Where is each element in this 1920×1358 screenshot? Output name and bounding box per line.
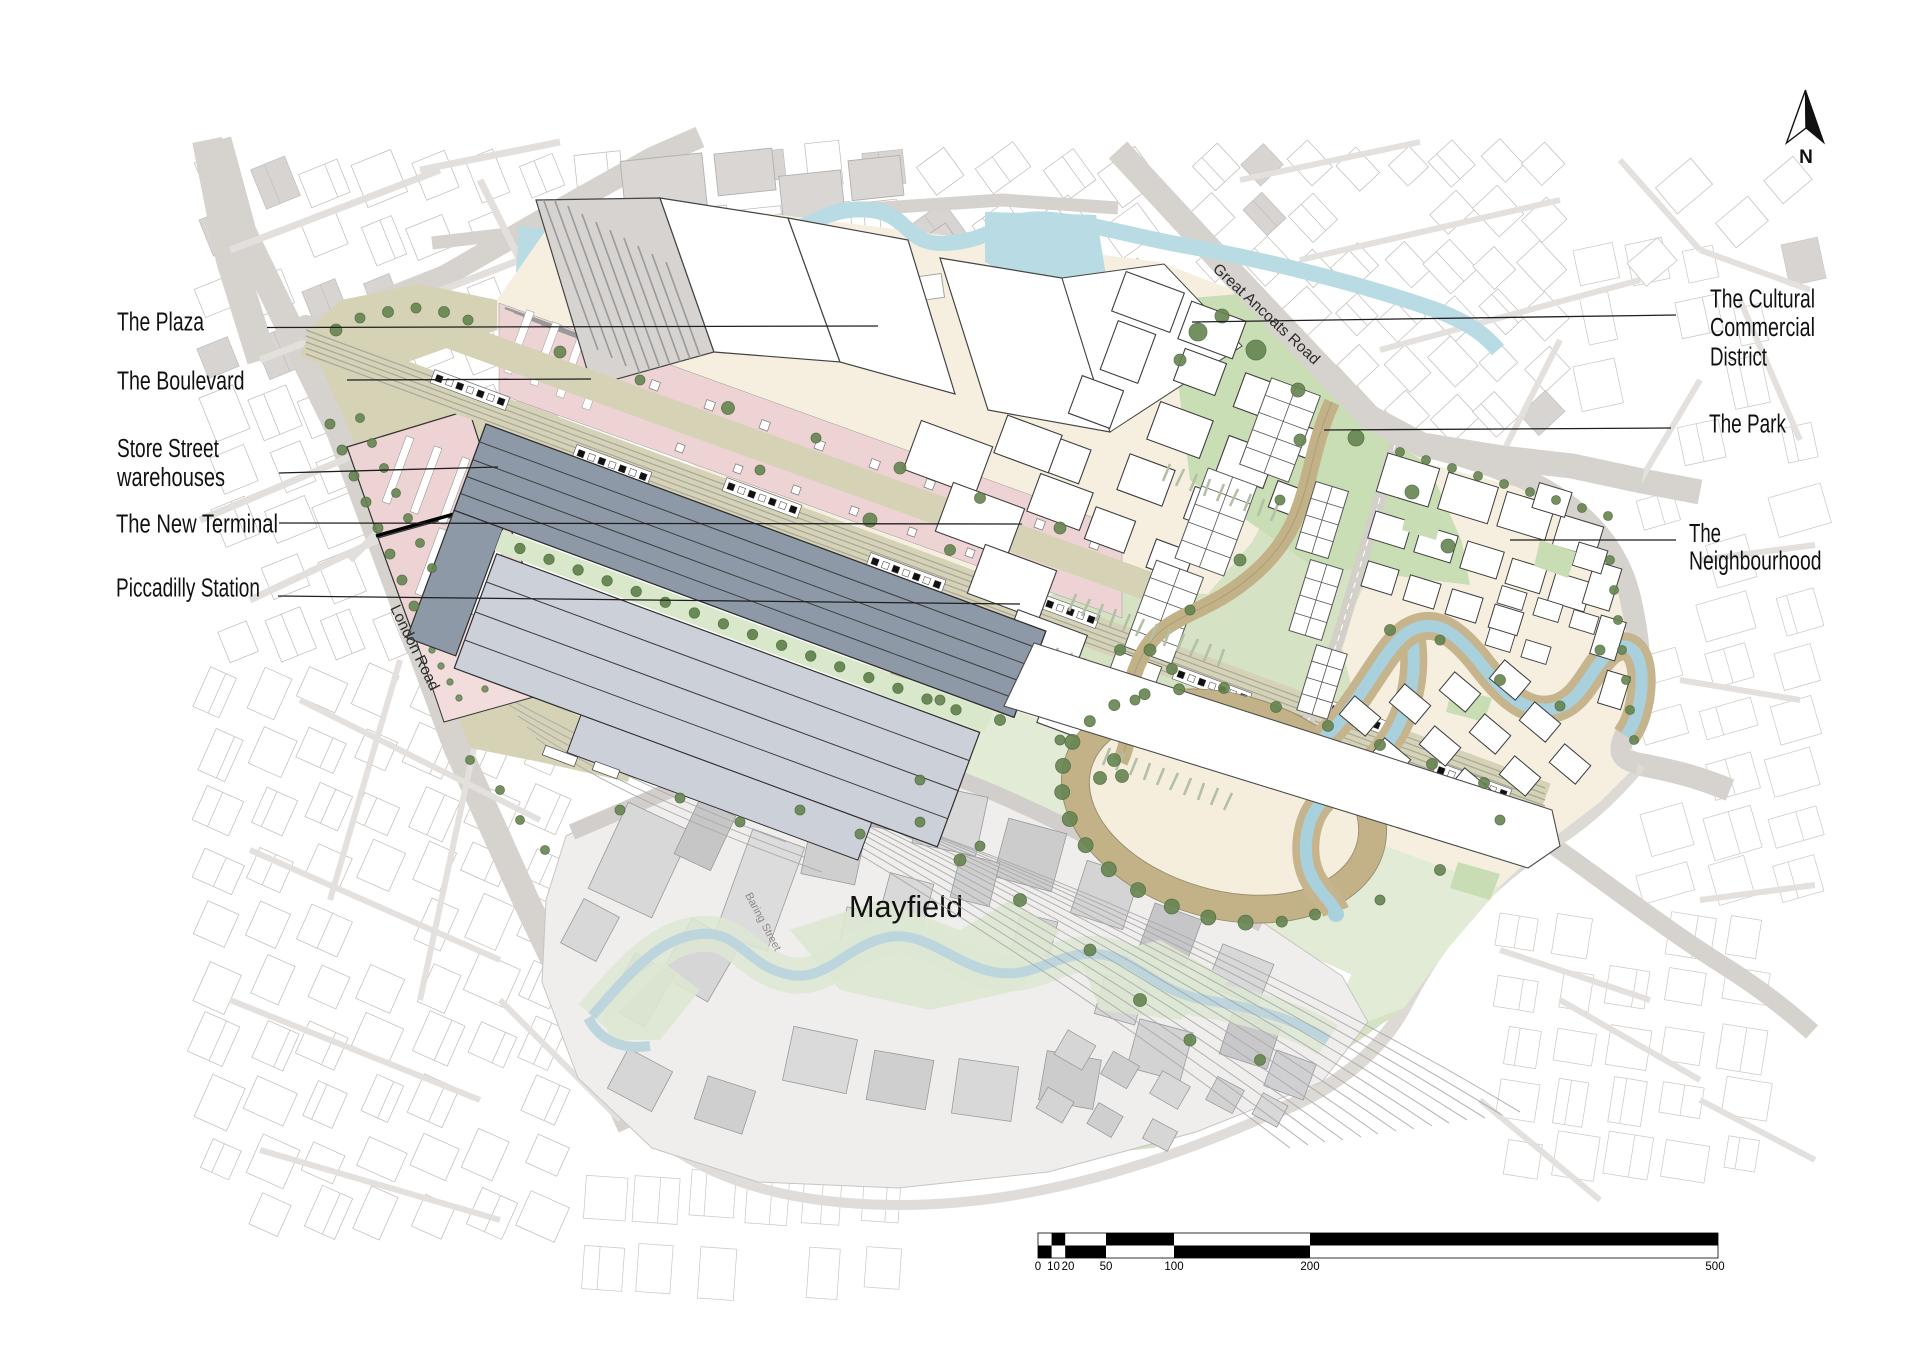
svg-text:The Boulevard: The Boulevard	[117, 367, 245, 395]
svg-text:500: 500	[1705, 1261, 1724, 1273]
svg-text:The Cultural: The Cultural	[1710, 286, 1815, 314]
svg-text:Neighbourhood: Neighbourhood	[1689, 548, 1822, 576]
svg-text:The: The	[1689, 520, 1721, 548]
svg-text:200: 200	[1300, 1261, 1319, 1273]
svg-text:Commercial: Commercial	[1710, 314, 1815, 342]
svg-text:Mayfield: Mayfield	[849, 890, 963, 924]
svg-text:The Park: The Park	[1709, 410, 1786, 438]
svg-text:N: N	[1799, 147, 1813, 168]
svg-text:20: 20	[1062, 1261, 1075, 1273]
svg-text:The Plaza: The Plaza	[117, 309, 205, 337]
svg-text:0: 0	[1035, 1261, 1041, 1273]
svg-text:The New Terminal: The New Terminal	[116, 511, 278, 539]
svg-text:warehouses: warehouses	[116, 464, 225, 492]
svg-text:District: District	[1710, 344, 1767, 372]
svg-text:10: 10	[1047, 1261, 1060, 1273]
svg-text:100: 100	[1164, 1261, 1183, 1273]
svg-text:50: 50	[1100, 1261, 1113, 1273]
svg-text:Store Street: Store Street	[117, 435, 219, 463]
svg-text:Piccadilly Station: Piccadilly Station	[116, 575, 260, 603]
